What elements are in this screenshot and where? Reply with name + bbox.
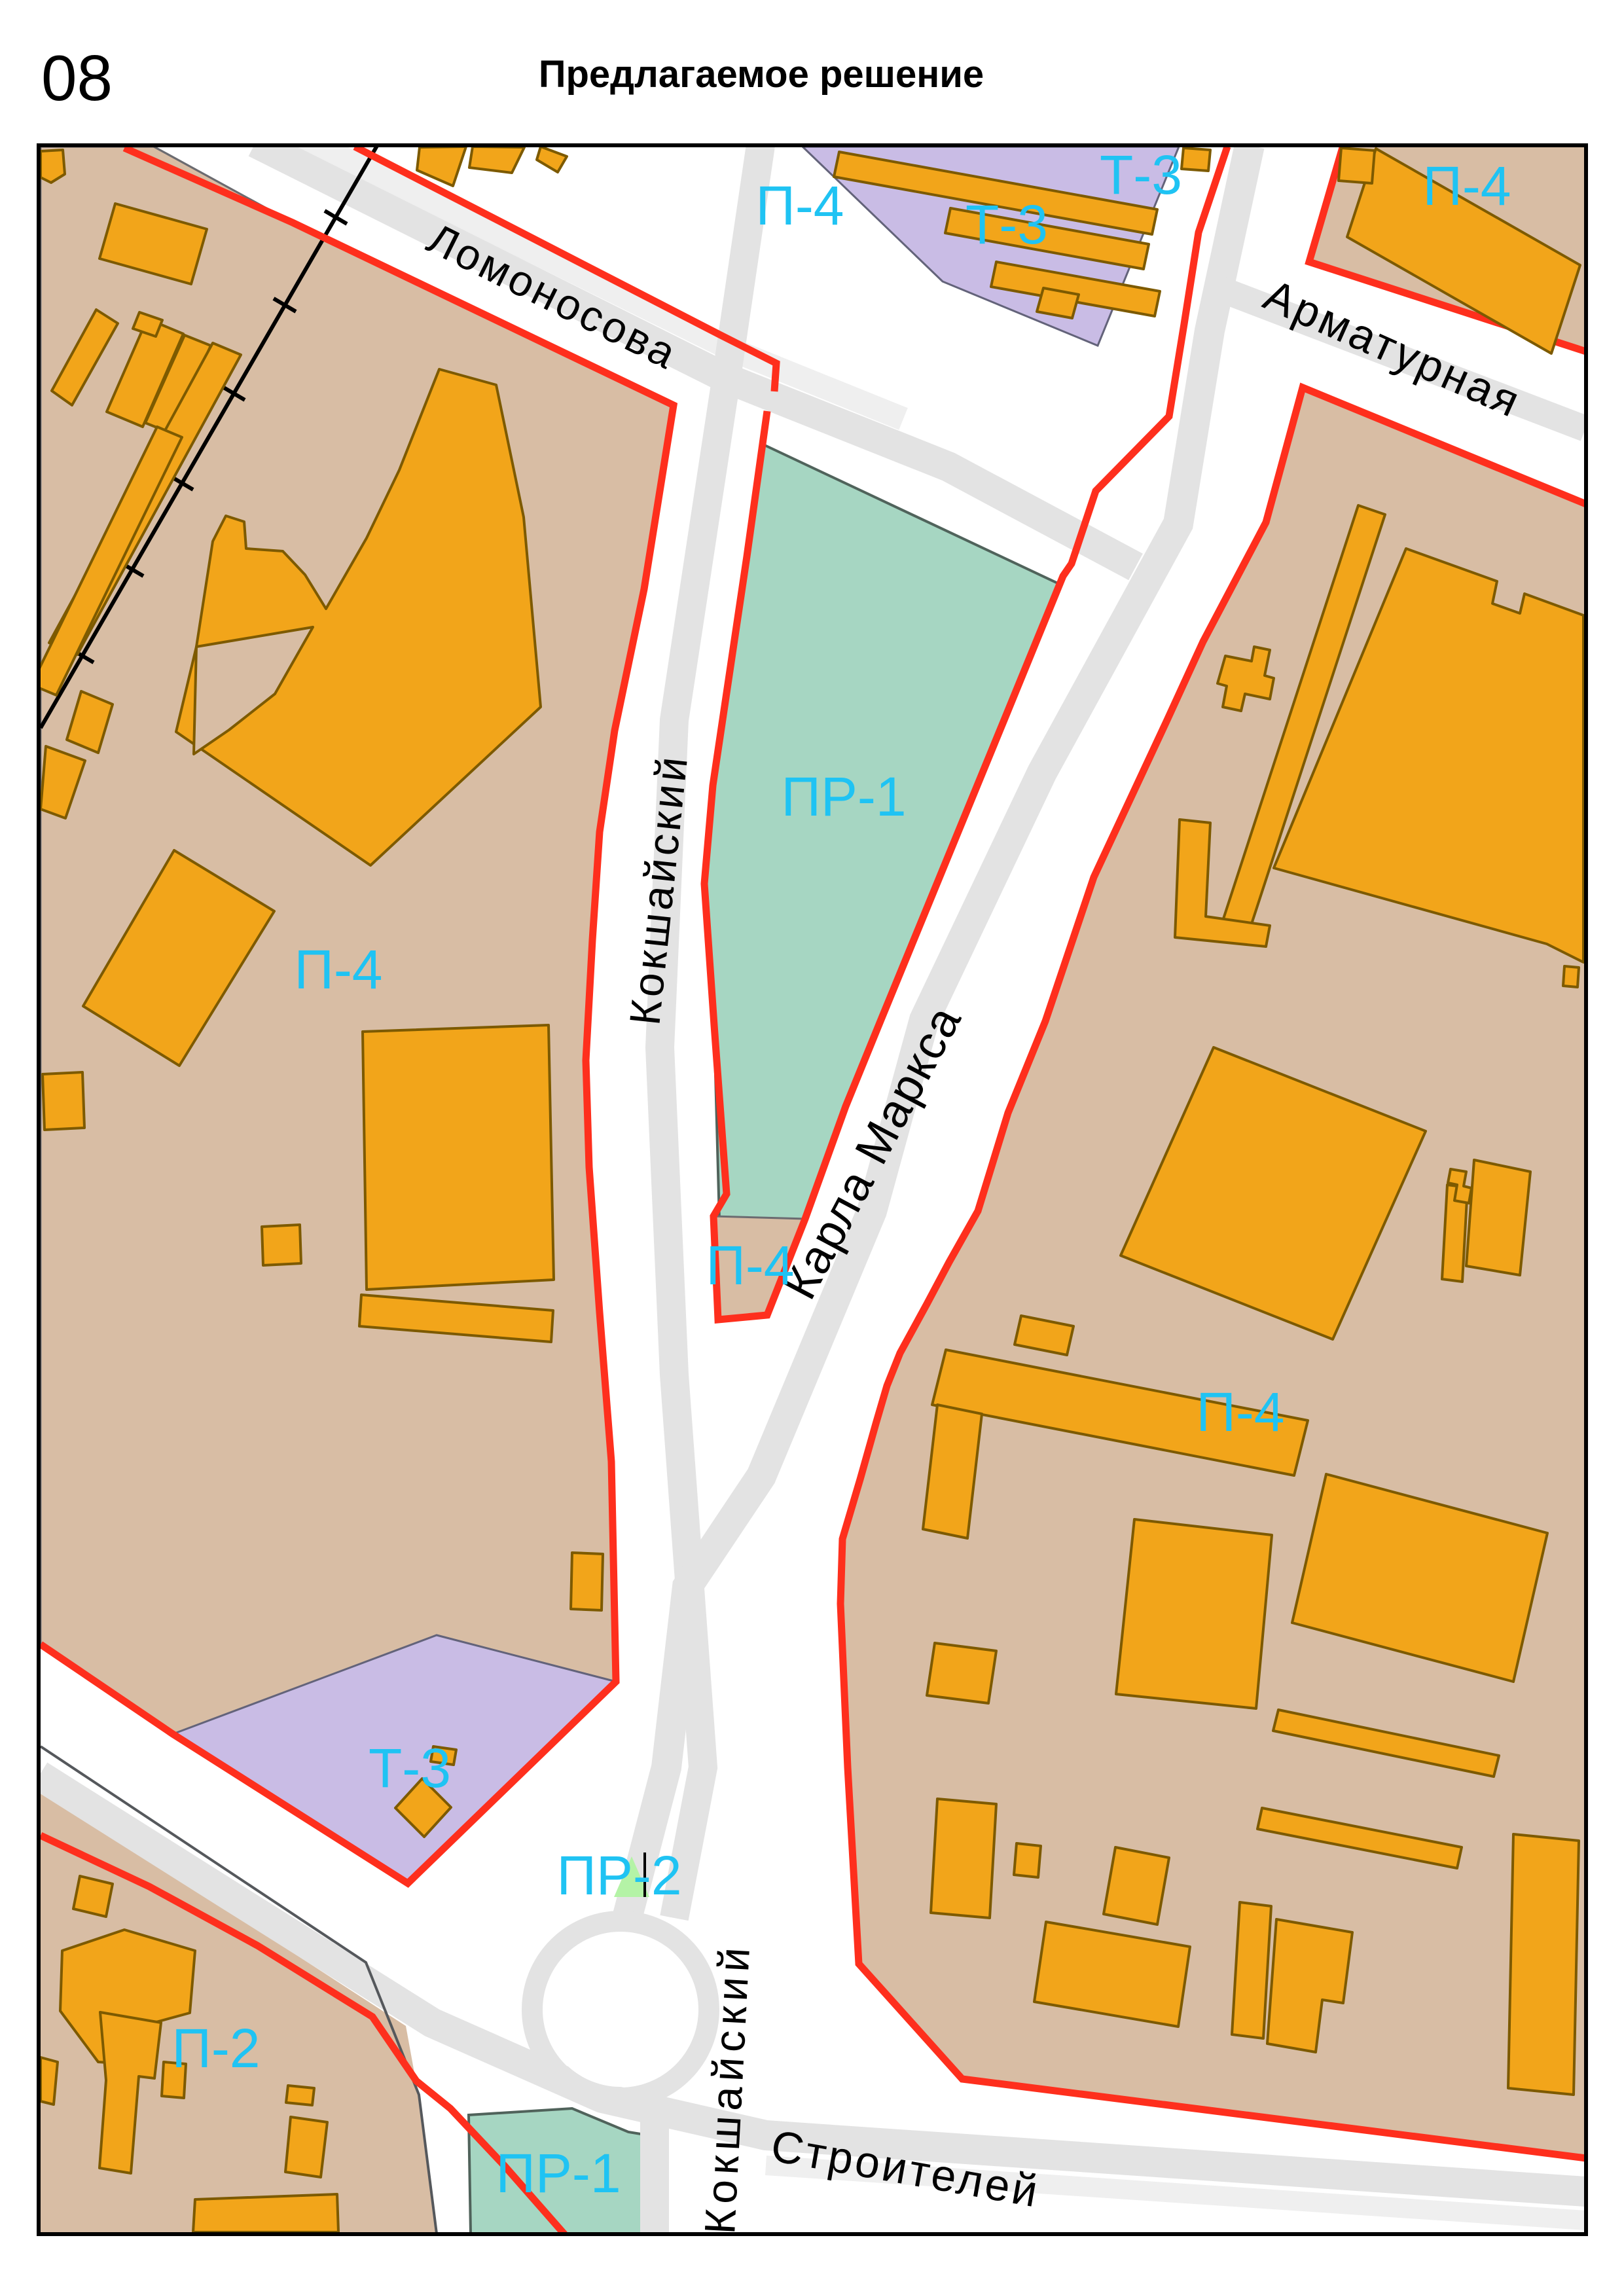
svg-text:ПР-1: ПР-1 xyxy=(781,766,906,827)
svg-text:Т-3: Т-3 xyxy=(965,194,1048,255)
svg-text:Т-3: Т-3 xyxy=(1100,144,1182,206)
svg-text:П-4: П-4 xyxy=(1196,1381,1284,1443)
svg-text:ПР-1: ПР-1 xyxy=(496,2142,621,2204)
svg-text:П-4: П-4 xyxy=(706,1235,794,1296)
svg-text:Т-3: Т-3 xyxy=(369,1737,451,1799)
svg-text:Предлагаемое решение: Предлагаемое решение xyxy=(539,53,984,96)
svg-text:П-4: П-4 xyxy=(1422,155,1511,217)
svg-text:П-4: П-4 xyxy=(755,175,844,236)
svg-text:П-4: П-4 xyxy=(294,939,382,1000)
svg-text:08: 08 xyxy=(41,42,113,114)
svg-text:ПР-2: ПР-2 xyxy=(556,1845,681,1906)
svg-text:П-2: П-2 xyxy=(171,2017,260,2079)
